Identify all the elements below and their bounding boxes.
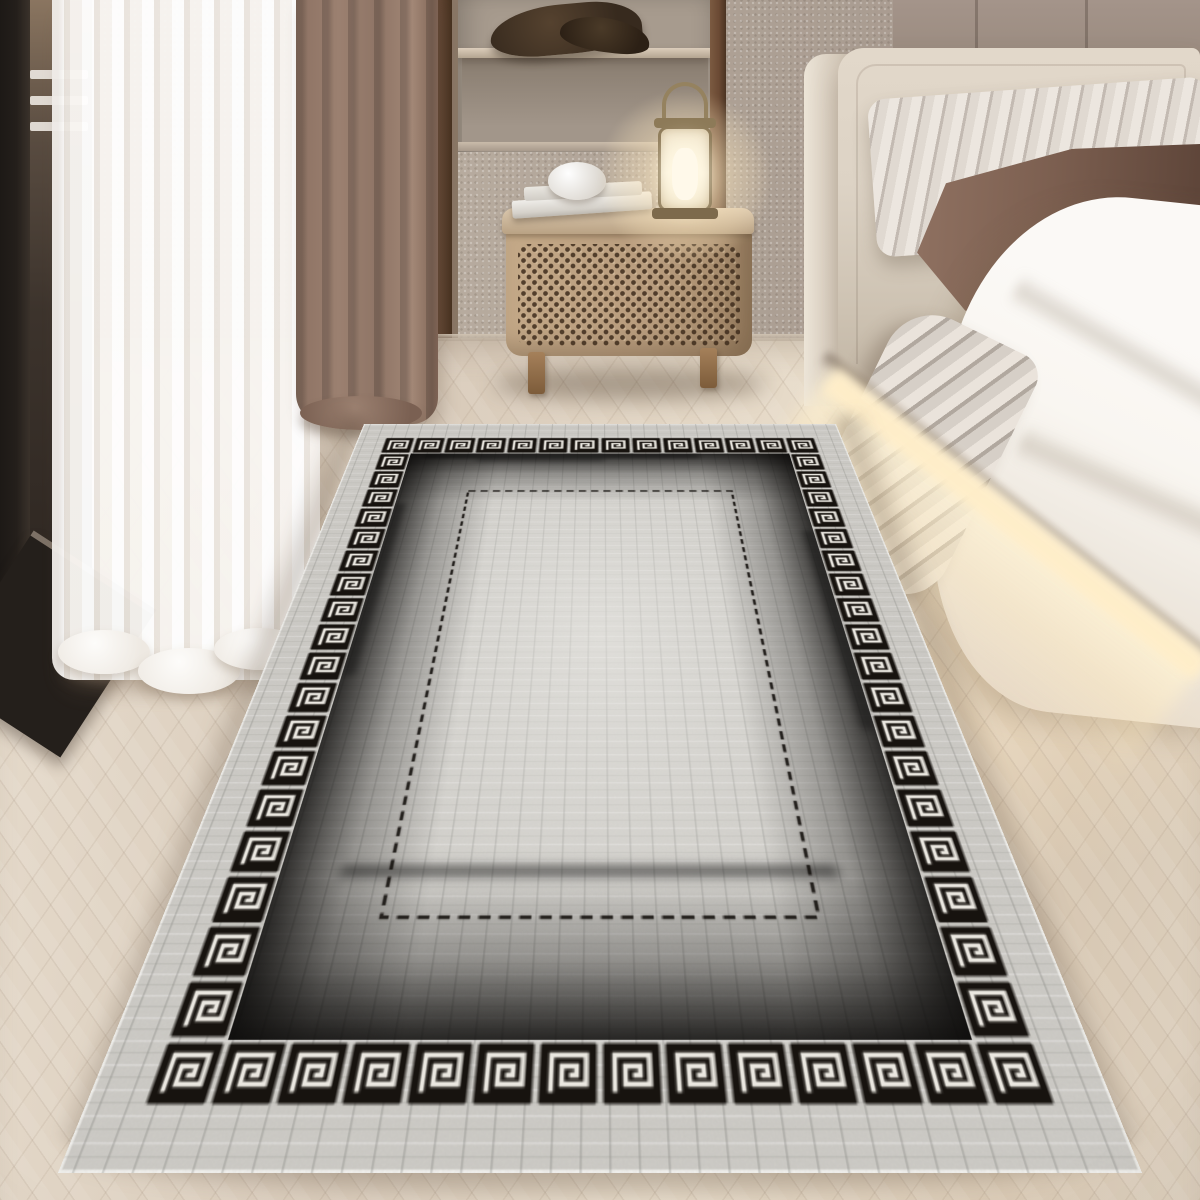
nightstand-leg-left — [528, 352, 545, 394]
accent-curtain — [296, 0, 438, 424]
sheer-hem — [58, 630, 150, 674]
white-trinket — [548, 162, 606, 200]
door-trim-highlight — [452, 0, 458, 345]
lantern-candle — [672, 148, 698, 200]
lantern-base — [652, 208, 718, 219]
greek-key-border-top — [379, 437, 820, 453]
nightstand-leg-right — [700, 348, 717, 388]
bedroom-scene — [0, 0, 1200, 1200]
greek-key-border-bottom — [141, 1040, 1058, 1108]
